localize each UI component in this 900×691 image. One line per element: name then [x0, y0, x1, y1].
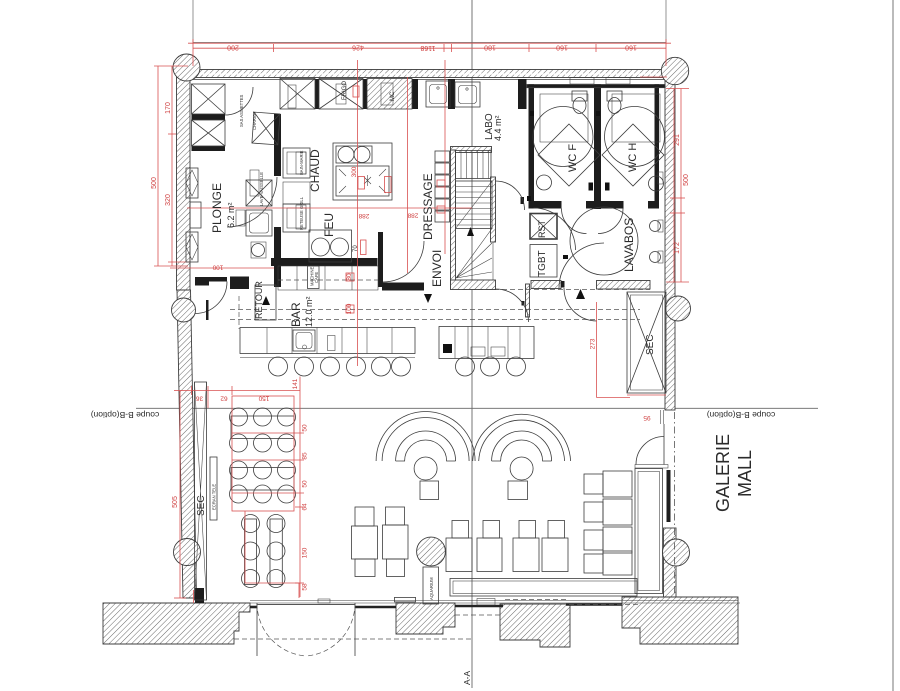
svg-text:505: 505: [172, 496, 179, 508]
svg-text:SEC: SEC: [645, 334, 656, 355]
svg-text:DRESSAGE: DRESSAGE: [421, 173, 435, 240]
svg-text:500: 500: [151, 177, 158, 189]
svg-text:AQUARIUM: AQUARIUM: [429, 577, 434, 600]
svg-text:80: 80: [346, 273, 353, 281]
svg-text:160: 160: [625, 44, 637, 51]
svg-text:180: 180: [484, 44, 496, 51]
svg-text:70: 70: [353, 245, 359, 252]
svg-text:500: 500: [683, 174, 690, 186]
svg-text:CHARIOT: CHARIOT: [252, 111, 257, 130]
svg-text:BAR: BAR: [289, 302, 303, 327]
svg-text:MALL: MALL: [735, 450, 755, 497]
svg-text:4.4 m²: 4.4 m²: [493, 115, 503, 141]
svg-text:50: 50: [302, 424, 309, 432]
svg-text:TGBT: TGBT: [537, 250, 548, 277]
svg-text:A-A: A-A: [462, 671, 472, 686]
svg-text:SAS ASSIETTES: SAS ASSIETTES: [239, 94, 244, 127]
svg-text:300: 300: [351, 166, 358, 177]
svg-text:LAVE-VAISSELLE: LAVE-VAISSELLE: [259, 172, 264, 206]
svg-text:ECRAN TELE: ECRAN TELE: [212, 484, 217, 510]
svg-text:RETOUR: RETOUR: [254, 281, 264, 319]
svg-text:coupe B-B(option): coupe B-B(option): [91, 410, 160, 420]
svg-text:MC: MC: [390, 91, 396, 101]
svg-text:58: 58: [302, 583, 309, 591]
svg-text:WC H: WC H: [627, 143, 639, 172]
svg-text:coupe B-B(option): coupe B-B(option): [707, 410, 776, 420]
svg-text:100: 100: [346, 303, 353, 314]
svg-text:36: 36: [196, 395, 204, 402]
svg-text:426: 426: [352, 44, 364, 51]
svg-text:6.2 m²: 6.2 m²: [226, 202, 236, 228]
svg-text:273: 273: [590, 338, 597, 349]
svg-text:RETEUSE GRILL: RETEUSE GRILL: [299, 196, 304, 230]
svg-text:172: 172: [674, 242, 681, 254]
svg-text:62: 62: [220, 395, 228, 402]
svg-text:95: 95: [643, 414, 651, 421]
svg-text:12.0 m²: 12.0 m²: [304, 296, 314, 327]
svg-text:SEC: SEC: [196, 495, 207, 516]
svg-text:85: 85: [302, 452, 309, 460]
svg-text:1168: 1168: [420, 44, 435, 51]
svg-text:288: 288: [407, 212, 418, 219]
svg-text:150: 150: [302, 547, 309, 558]
svg-text:WC F: WC F: [567, 144, 579, 172]
svg-text:BAIN-MARIE: BAIN-MARIE: [299, 150, 304, 175]
svg-text:141: 141: [292, 378, 299, 389]
svg-text:320: 320: [165, 194, 172, 206]
svg-text:160: 160: [556, 44, 568, 51]
svg-text:64: 64: [302, 503, 309, 511]
svg-text:CHAUD: CHAUD: [308, 149, 322, 192]
svg-text:291: 291: [674, 134, 681, 146]
svg-text:RST: RST: [537, 219, 547, 238]
svg-text:150: 150: [258, 395, 269, 402]
svg-text:GALERIE: GALERIE: [713, 434, 733, 512]
svg-text:CAFE: CAFE: [314, 272, 319, 283]
svg-text:LAVABOS: LAVABOS: [622, 218, 636, 272]
svg-text:FEU: FEU: [322, 213, 336, 237]
svg-text:100: 100: [212, 264, 223, 271]
svg-text:288: 288: [358, 212, 369, 219]
svg-text:200: 200: [227, 44, 239, 51]
svg-text:170: 170: [165, 102, 172, 114]
svg-text:ENVOI: ENVOI: [430, 250, 444, 287]
svg-text:PLONGE: PLONGE: [210, 183, 224, 233]
svg-text:FRIGO: FRIGO: [342, 81, 348, 100]
svg-text:50: 50: [302, 480, 309, 488]
